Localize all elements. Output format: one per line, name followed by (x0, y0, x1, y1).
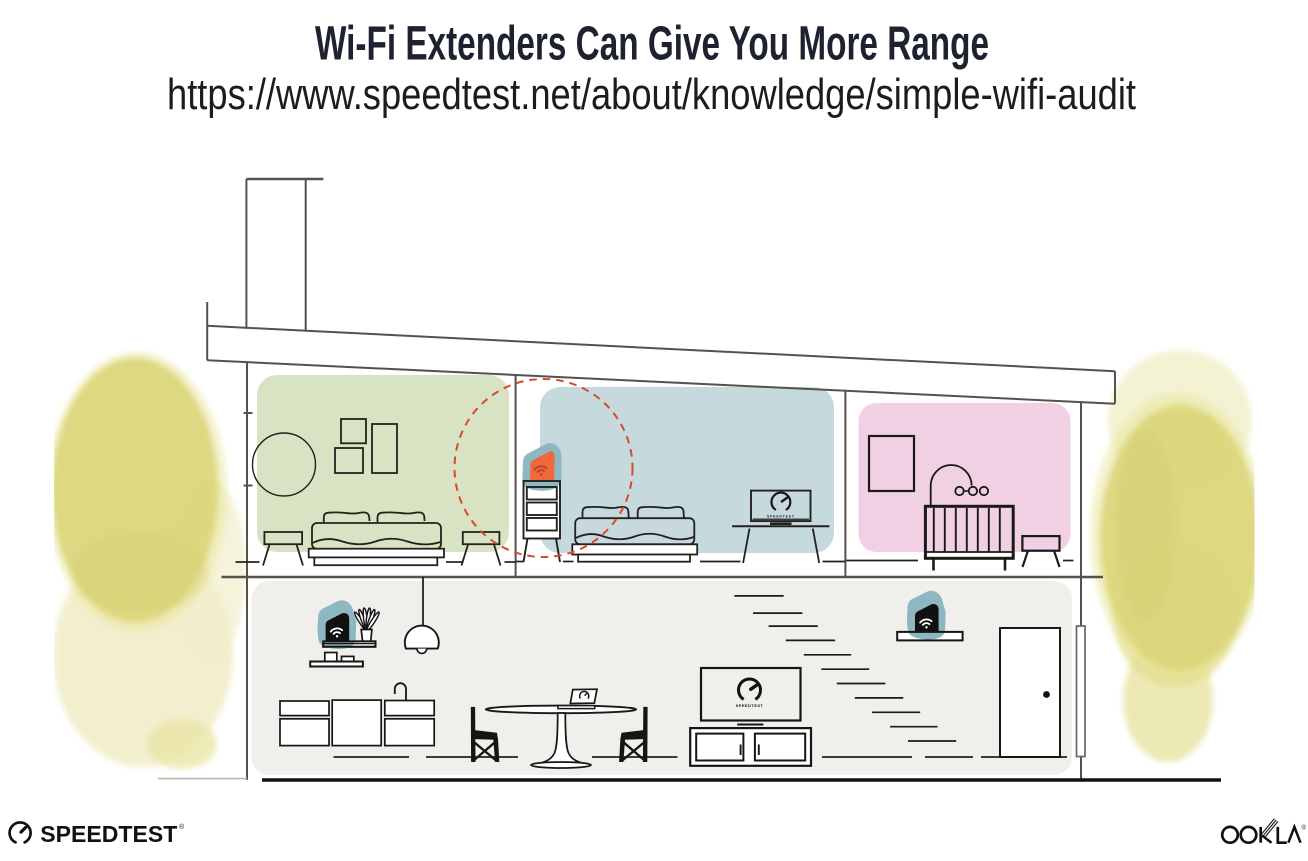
svg-text:Wi-Fi Extenders Can Give You M: Wi-Fi Extenders Can Give You More Range (315, 18, 989, 71)
svg-text:https://www.speedtest.net/abou: https://www.speedtest.net/about/knowledg… (167, 70, 1136, 119)
svg-text:SPEEDTEST: SPEEDTEST (40, 821, 178, 847)
svg-text:SPEEDTEST: SPEEDTEST (736, 703, 764, 708)
svg-text:SPEEDTEST: SPEEDTEST (767, 514, 795, 518)
svg-text:®: ® (1302, 825, 1307, 832)
svg-text:®: ® (179, 823, 185, 831)
